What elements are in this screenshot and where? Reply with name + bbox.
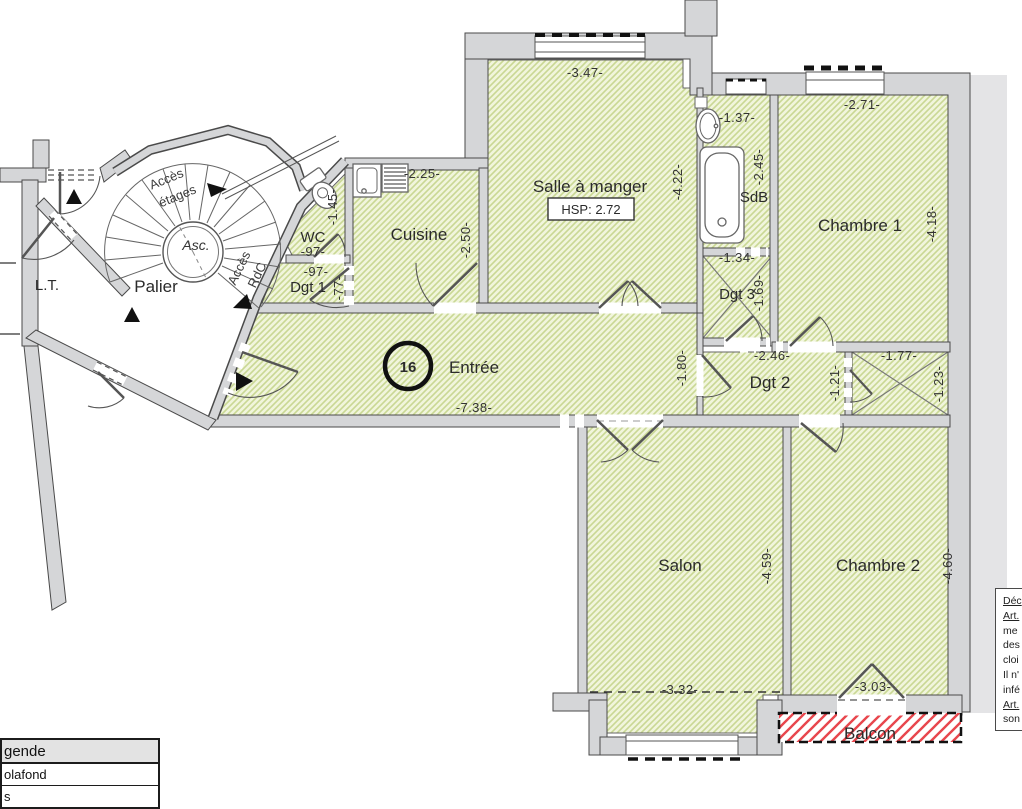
dim-chambre1-top: -2.71- <box>844 97 880 112</box>
wall-salon-left <box>578 427 587 695</box>
dim-dgt2-top: -2.46- <box>754 348 790 363</box>
bathtub-icon <box>700 147 744 243</box>
wall-cuisine-salle <box>479 168 488 303</box>
up-arrow-palier-bottom <box>124 307 140 322</box>
dim-dgt3-top: -1.34- <box>719 250 755 265</box>
stair-down-arrow <box>233 294 252 309</box>
label-salon: Salon <box>658 556 701 575</box>
dim-sdb-sink: -1.37- <box>719 110 755 125</box>
label-balcon: Balcon <box>844 724 896 743</box>
dim-chambre2-bottom: -3.03- <box>855 679 891 694</box>
note-line: Déc <box>1003 594 1022 609</box>
note-line: Art. <box>1003 609 1022 624</box>
wall-salle-left <box>465 59 488 168</box>
label-cuisine: Cuisine <box>391 225 448 244</box>
dim-dgt2-right: -1.21- <box>827 365 842 401</box>
dim-salon-right: -4.59- <box>759 548 774 584</box>
window-salle <box>535 35 645 58</box>
dim-dgt1-width: -97- <box>304 264 329 279</box>
wall-salon-chambre2 <box>783 427 791 695</box>
dim-salon-bottom: -3.32- <box>662 682 698 697</box>
legend-title: gende <box>2 740 158 764</box>
window-salon-bay <box>626 735 740 759</box>
dim-entree-length: -7.38- <box>456 400 492 415</box>
note-line: Art. <box>1003 698 1022 713</box>
label-asc: Asc. <box>181 237 209 253</box>
wall-chimney <box>685 0 717 36</box>
note-line: son <box>1003 712 1022 727</box>
note-line: cloi <box>1003 653 1022 668</box>
dim-dgt3-right: -1.69- <box>751 275 766 311</box>
wall-edge-ticks <box>0 263 20 334</box>
kitchen-sink-icon <box>353 164 381 197</box>
wall-sdb-chambre1 <box>770 95 778 346</box>
label-chambre2: Chambre 2 <box>836 556 920 575</box>
note-line: infé <box>1003 683 1022 698</box>
dim-placard-right: -1.23- <box>931 366 946 402</box>
dim-dgt1-depth: -77- <box>331 276 346 301</box>
floor-plan-drawing: 16 HSP: 2.72 Palier L.T. WC Dgt 1 Cuisin… <box>0 0 1022 800</box>
label-lt: L.T. <box>35 277 59 294</box>
note-line: me <box>1003 624 1022 639</box>
window-sdb <box>726 79 766 94</box>
dim-placard-top: -1.77- <box>881 348 917 363</box>
lot-number: 16 <box>400 359 417 376</box>
legend-table: gende olafond s <box>0 738 160 809</box>
legend-row-plafond: olafond <box>2 764 158 786</box>
label-chambre1: Chambre 1 <box>818 216 902 235</box>
wall-stair-enclosure <box>115 130 304 190</box>
hsp-value: HSP: 2.72 <box>561 202 620 217</box>
note-line: Il n' <box>1003 668 1022 683</box>
note-line: des <box>1003 638 1022 653</box>
wall-cap-topleft <box>33 140 49 168</box>
floor-plan: 16 HSP: 2.72 Palier L.T. WC Dgt 1 Cuisin… <box>0 0 1022 800</box>
dim-cuisine-top: -2.25- <box>404 166 440 181</box>
dim-wc-depth: -1.45- <box>325 189 340 225</box>
dim-chambre1-right: -4.18- <box>924 206 939 242</box>
dim-chambre2-right: -4.60- <box>940 548 955 584</box>
wall-left <box>22 180 38 346</box>
wall-left-wedge <box>24 346 66 610</box>
label-palier: Palier <box>134 277 178 296</box>
dim-entree-width: -1.80- <box>674 350 689 386</box>
regulation-note: Déc Art. me des cloi Il n' infé Art. son <box>995 588 1022 731</box>
legend-row-2: s <box>2 786 158 807</box>
label-dgt1: Dgt 1 <box>290 279 326 296</box>
window-chambre1 <box>804 68 886 94</box>
up-arrow-palier-top <box>66 189 82 204</box>
label-dgt3: Dgt 3 <box>719 286 755 303</box>
label-salle-a-manger: Salle à manger <box>533 177 648 196</box>
label-dgt2: Dgt 2 <box>750 373 791 392</box>
dim-salle-top: -3.47- <box>567 65 603 80</box>
dim-sdb-height: -2.45- <box>751 149 766 185</box>
dim-wc-width: -97- <box>301 244 326 259</box>
label-entree: Entrée <box>449 358 499 377</box>
label-sdb: SdB <box>740 189 768 206</box>
dim-salle-right: -4.22- <box>670 164 685 200</box>
dim-cuisine-right: -2.50- <box>458 222 473 258</box>
wall-entree-dgt-a <box>697 313 703 355</box>
